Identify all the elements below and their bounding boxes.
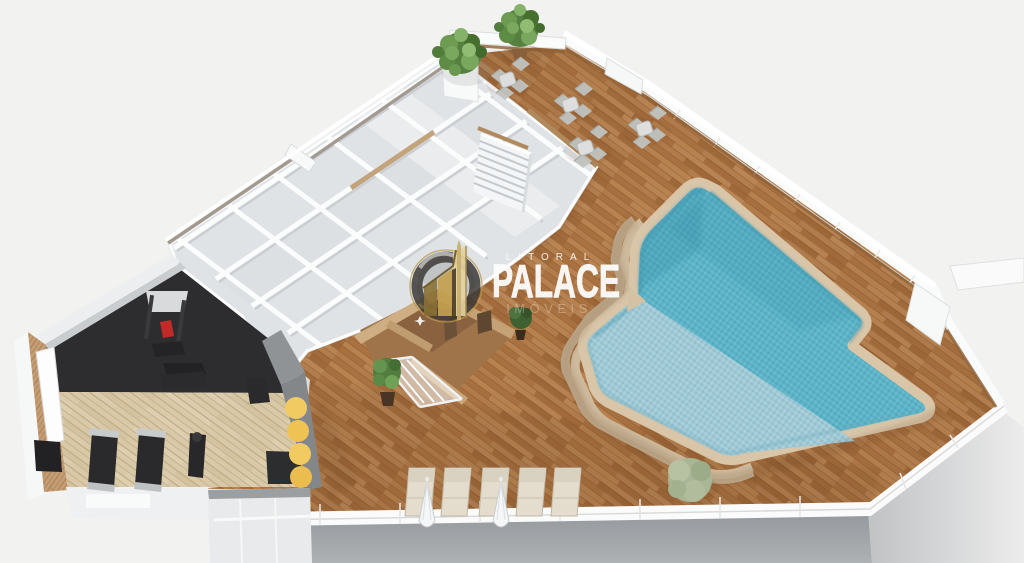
svg-text:PALACE: PALACE [492,255,620,307]
svg-text:IMÓVEIS: IMÓVEIS [506,301,592,316]
